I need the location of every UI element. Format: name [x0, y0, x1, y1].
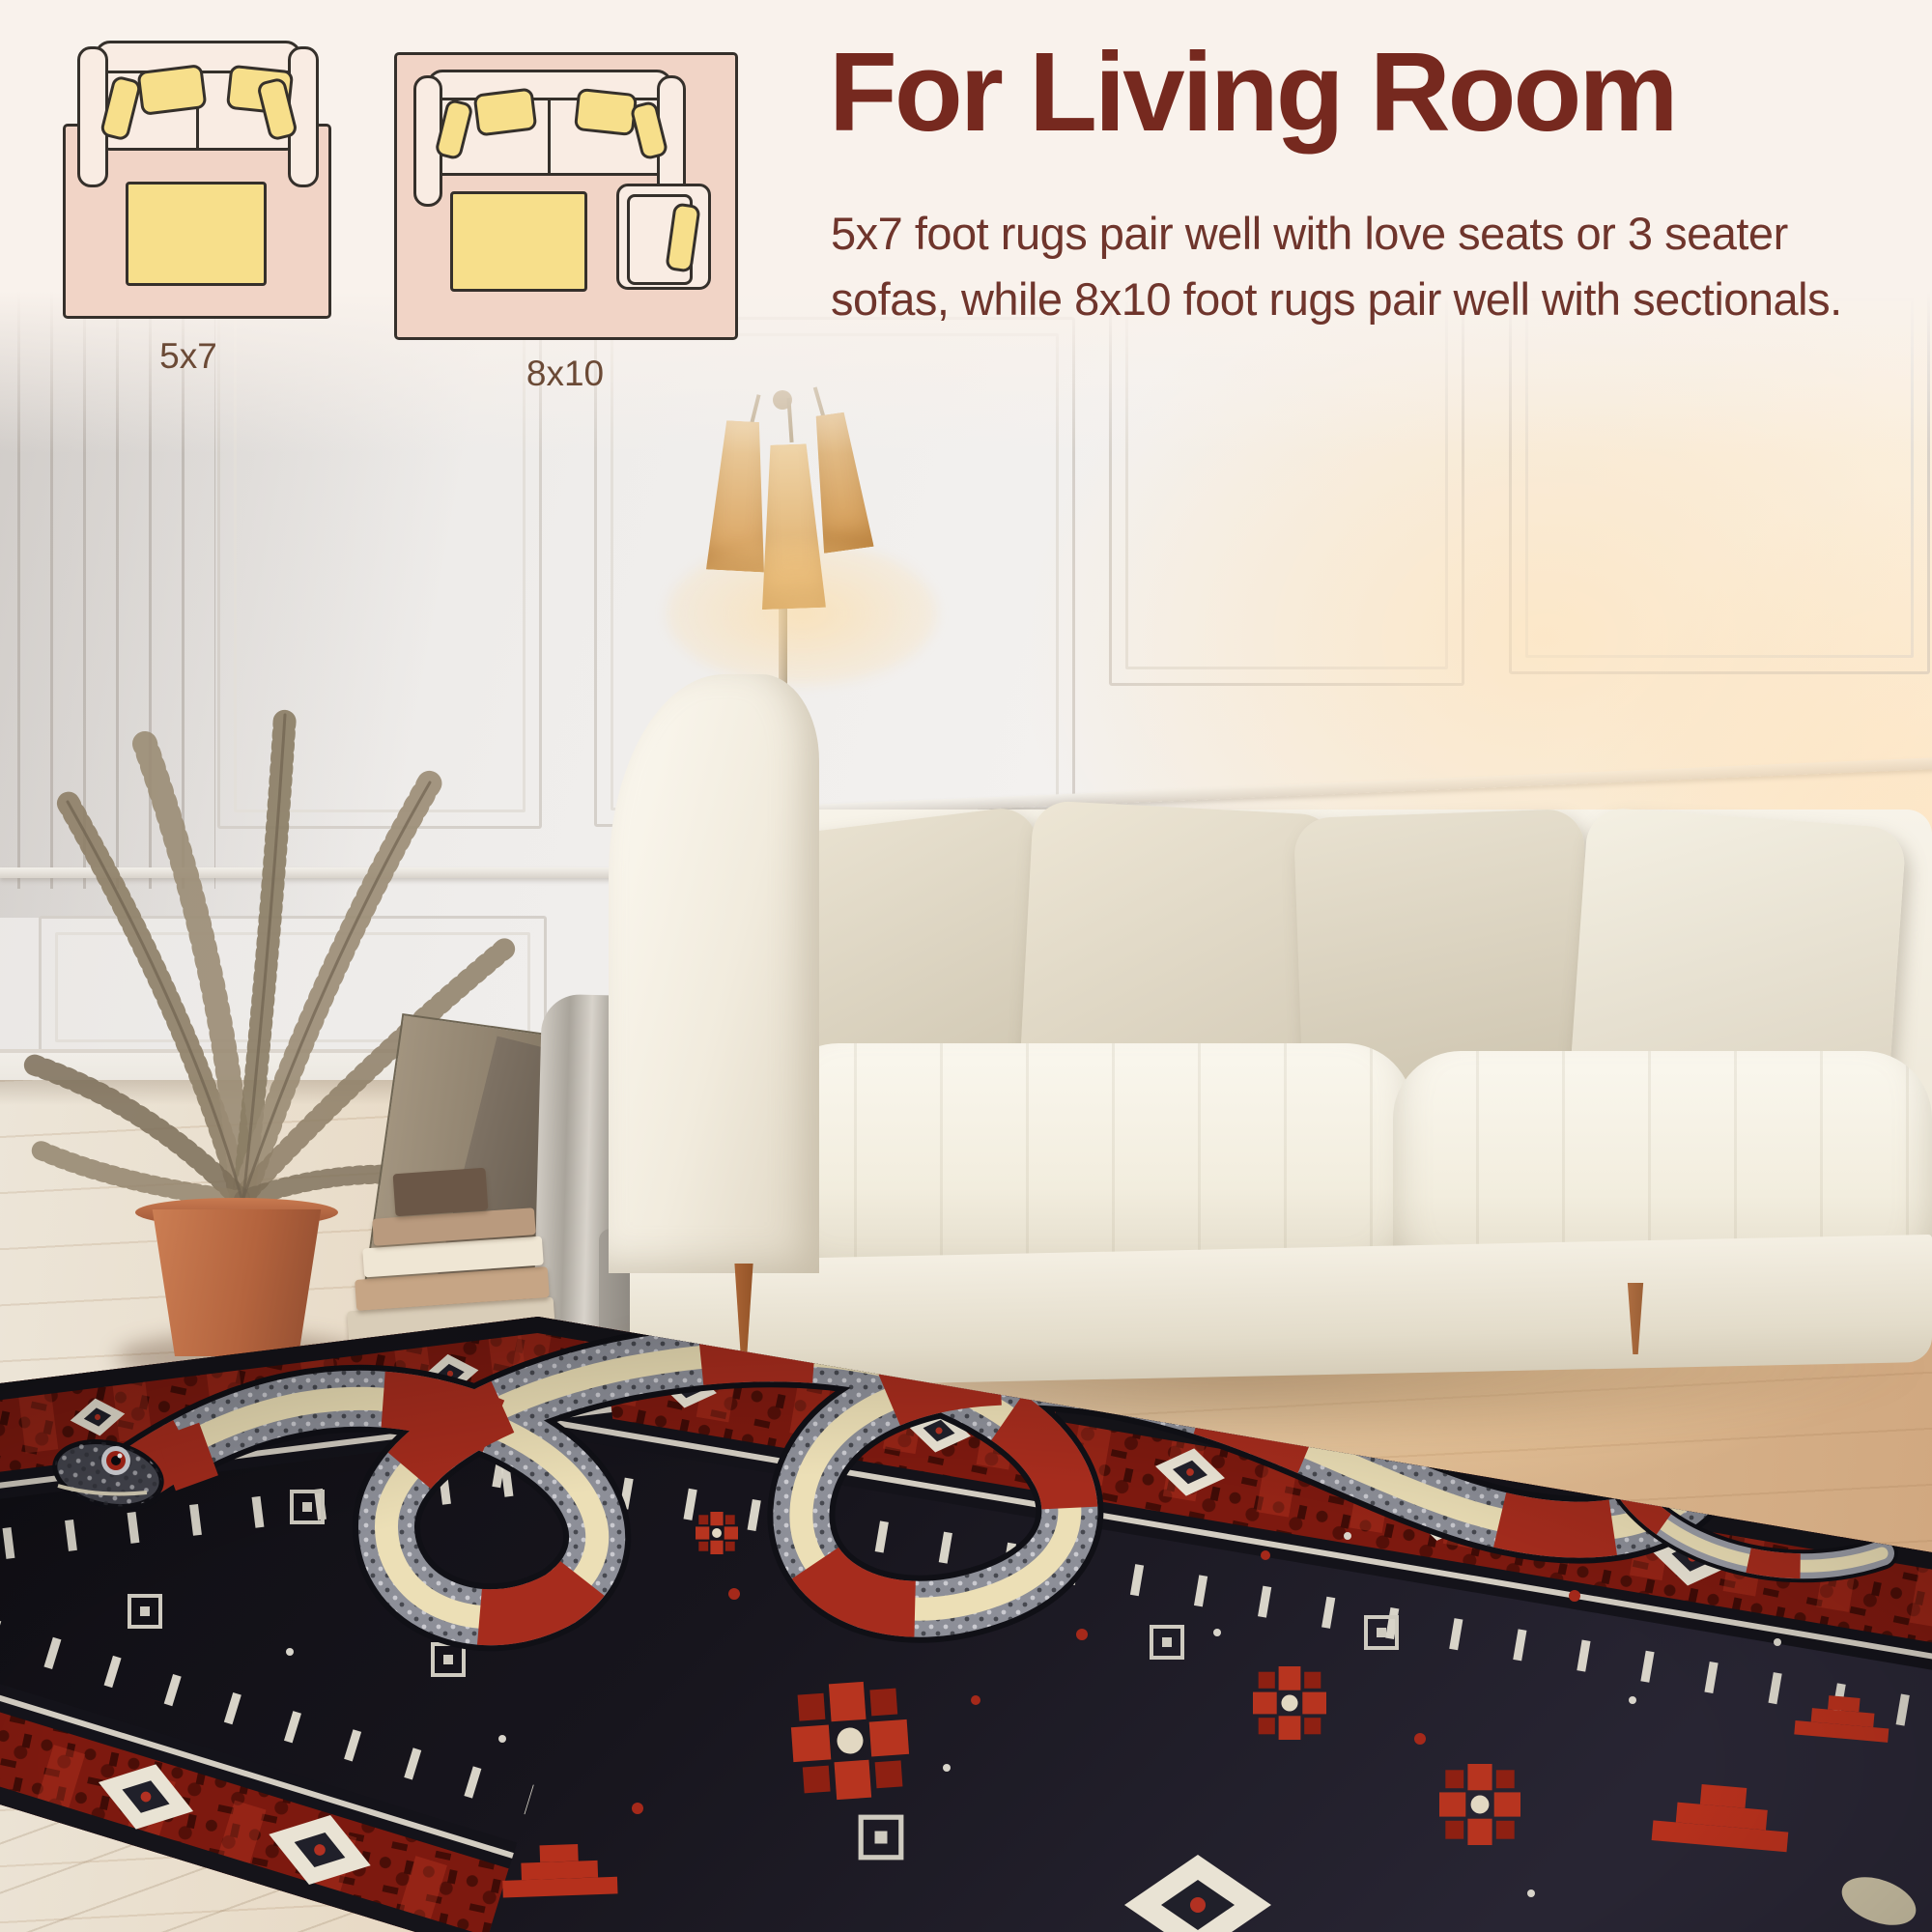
description-line-1: 5x7 foot rugs pair well with love seats … [831, 201, 1874, 267]
coffee-table-top-view [126, 182, 267, 286]
sofa-seat-divider [548, 98, 551, 173]
page-title: For Living Room [829, 27, 1930, 156]
description-text: 5x7 foot rugs pair well with love seats … [831, 201, 1874, 332]
armchair-top-view [616, 184, 711, 290]
rug-product-infographic: For Living Room 5x7 foot rugs pair well … [0, 0, 1932, 1932]
pillow-top-view [473, 87, 538, 136]
diagram-5x7: 5x7 [39, 29, 338, 377]
diagram-8x10: 8x10 [386, 29, 744, 396]
coffee-table-top-view [450, 191, 587, 292]
size-label-8x10: 8x10 [386, 354, 744, 394]
header-band: For Living Room 5x7 foot rugs pair well … [0, 0, 1932, 454]
pillow-top-view [136, 64, 207, 116]
rug-vignette [0, 1256, 1932, 1932]
pillow-top-view [574, 88, 638, 136]
size-label-5x7: 5x7 [39, 336, 338, 377]
description-line-2: sofas, while 8x10 foot rugs pair well wi… [831, 267, 1874, 332]
